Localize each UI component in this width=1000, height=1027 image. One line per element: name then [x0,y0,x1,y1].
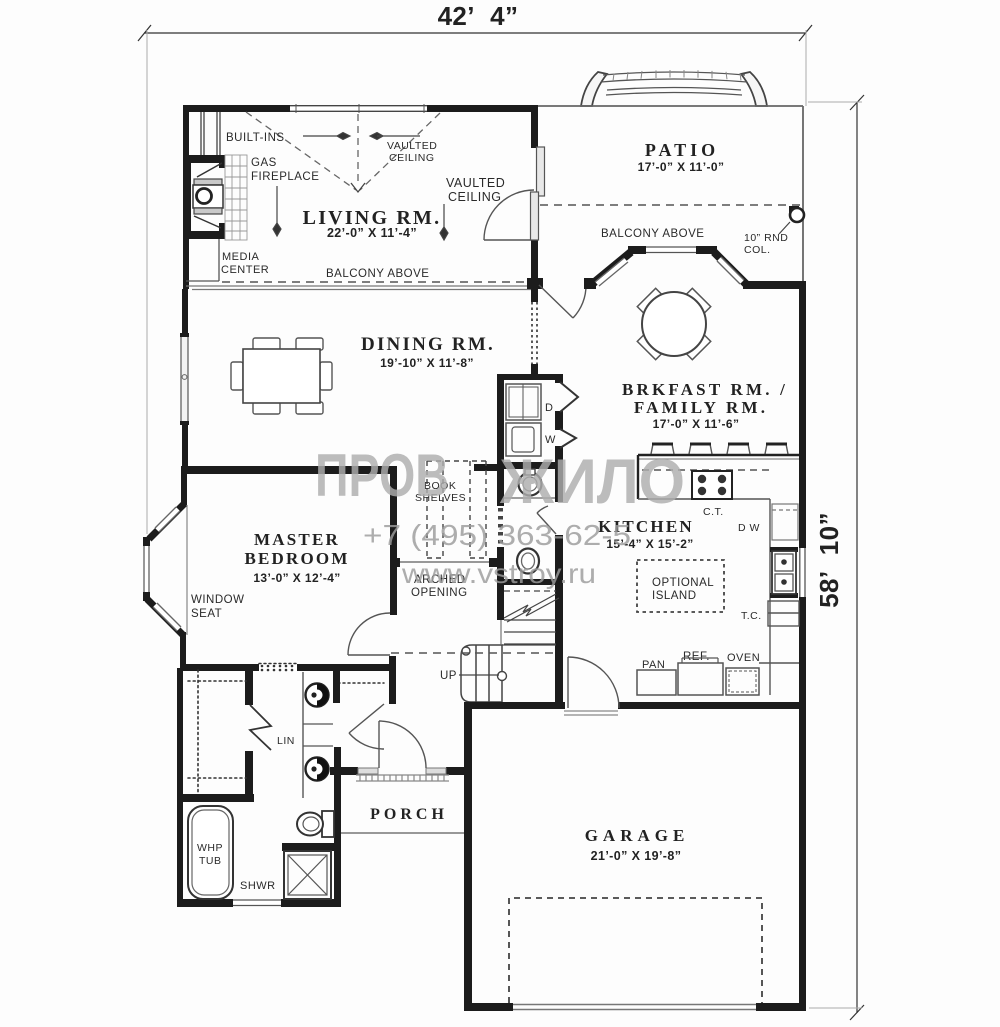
svg-text:21’-0” X 19’-8”: 21’-0” X 19’-8” [591,849,682,863]
svg-text:BALCONY ABOVE: BALCONY ABOVE [326,268,429,280]
svg-text:ISLAND: ISLAND [652,590,697,602]
svg-text:PAN: PAN [642,659,665,671]
svg-text:UP: UP [440,670,457,682]
svg-text:C.T.: C.T. [703,506,724,518]
svg-text:22’-0” X 11’-4”: 22’-0” X 11’-4” [327,226,417,240]
svg-text:ЖИЛО: ЖИЛО [499,447,685,517]
svg-text:TUB: TUB [199,855,222,867]
svg-text:BRKFAST RM. /: BRKFAST RM. / [622,380,788,399]
svg-text:WHP: WHP [197,842,223,854]
svg-text:SHWR: SHWR [240,880,276,892]
svg-text:SEAT: SEAT [191,608,222,620]
svg-text:58’ 10”: 58’ 10” [814,512,844,608]
svg-text:17’-0” X 11’-0”: 17’-0” X 11’-0” [638,160,725,174]
svg-text:COL.: COL. [744,244,771,256]
svg-text:MEDIA: MEDIA [222,251,260,263]
svg-text:T.C.: T.C. [741,610,762,622]
svg-text:BUILT-INS: BUILT-INS [226,132,285,144]
svg-text:WINDOW: WINDOW [191,594,244,606]
svg-text:REF.: REF. [683,651,710,663]
svg-text:OVEN: OVEN [727,652,760,664]
svg-text:BALCONY ABOVE: BALCONY ABOVE [601,228,704,240]
svg-text:PATIO: PATIO [645,140,719,160]
svg-text:GAS: GAS [251,157,277,169]
svg-text:PORCH: PORCH [370,806,448,823]
svg-text:13’-0” X 12’-4”: 13’-0” X 12’-4” [253,571,340,585]
svg-text:19’-10” X 11’-8”: 19’-10” X 11’-8” [380,356,474,370]
svg-text:CEILING: CEILING [448,190,502,204]
svg-text:OPTIONAL: OPTIONAL [652,577,714,589]
svg-text:VAULTED: VAULTED [446,176,505,190]
svg-text:www.vstroy.ru: www.vstroy.ru [401,558,596,589]
svg-text:D: D [545,402,553,414]
svg-text:FAMILY RM.: FAMILY RM. [634,398,768,417]
svg-text:MASTER: MASTER [254,530,340,549]
svg-text:LIN: LIN [277,735,295,747]
svg-text:ПРОВ: ПРОВ [315,442,449,509]
svg-text:BEDROOM: BEDROOM [244,549,349,568]
svg-text:VAULTED: VAULTED [387,140,437,152]
svg-text:D W: D W [738,522,760,534]
svg-text:FIREPLACE: FIREPLACE [251,171,319,183]
svg-text:42’ 4”: 42’ 4” [438,1,519,31]
svg-text:GARAGE: GARAGE [585,826,690,845]
svg-text:+7 (495) 363-62-5: +7 (495) 363-62-5 [363,520,631,552]
svg-text:CEILING: CEILING [389,152,435,164]
svg-text:10” RND: 10” RND [744,232,788,244]
svg-text:CENTER: CENTER [221,264,269,276]
svg-text:W: W [545,434,556,446]
svg-text:17’-0” X 11’-6”: 17’-0” X 11’-6” [653,417,740,431]
svg-text:DINING RM.: DINING RM. [361,334,495,355]
